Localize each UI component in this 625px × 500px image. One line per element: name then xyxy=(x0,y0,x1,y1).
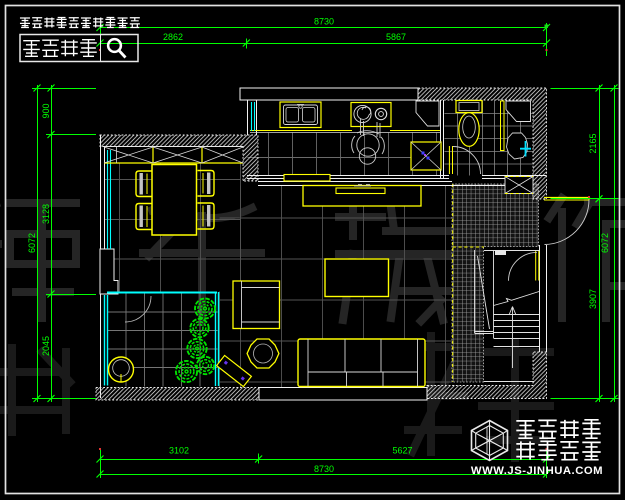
svg-text:2165: 2165 xyxy=(588,133,598,153)
svg-text:5867: 5867 xyxy=(386,32,406,42)
svg-text:3102: 3102 xyxy=(169,446,189,456)
svg-text:6072: 6072 xyxy=(600,233,610,253)
svg-text:2862: 2862 xyxy=(163,32,183,42)
svg-text:8730: 8730 xyxy=(314,16,334,26)
svg-text:900: 900 xyxy=(41,103,51,118)
svg-text:2045: 2045 xyxy=(41,336,51,356)
svg-text:6072: 6072 xyxy=(27,233,37,253)
svg-text:3907: 3907 xyxy=(588,289,598,309)
svg-text:8730: 8730 xyxy=(314,464,334,474)
svg-text:5627: 5627 xyxy=(392,446,412,456)
svg-text:3128: 3128 xyxy=(41,204,51,224)
svg-text:WWW.JS-JINHUA.COM: WWW.JS-JINHUA.COM xyxy=(471,465,603,477)
